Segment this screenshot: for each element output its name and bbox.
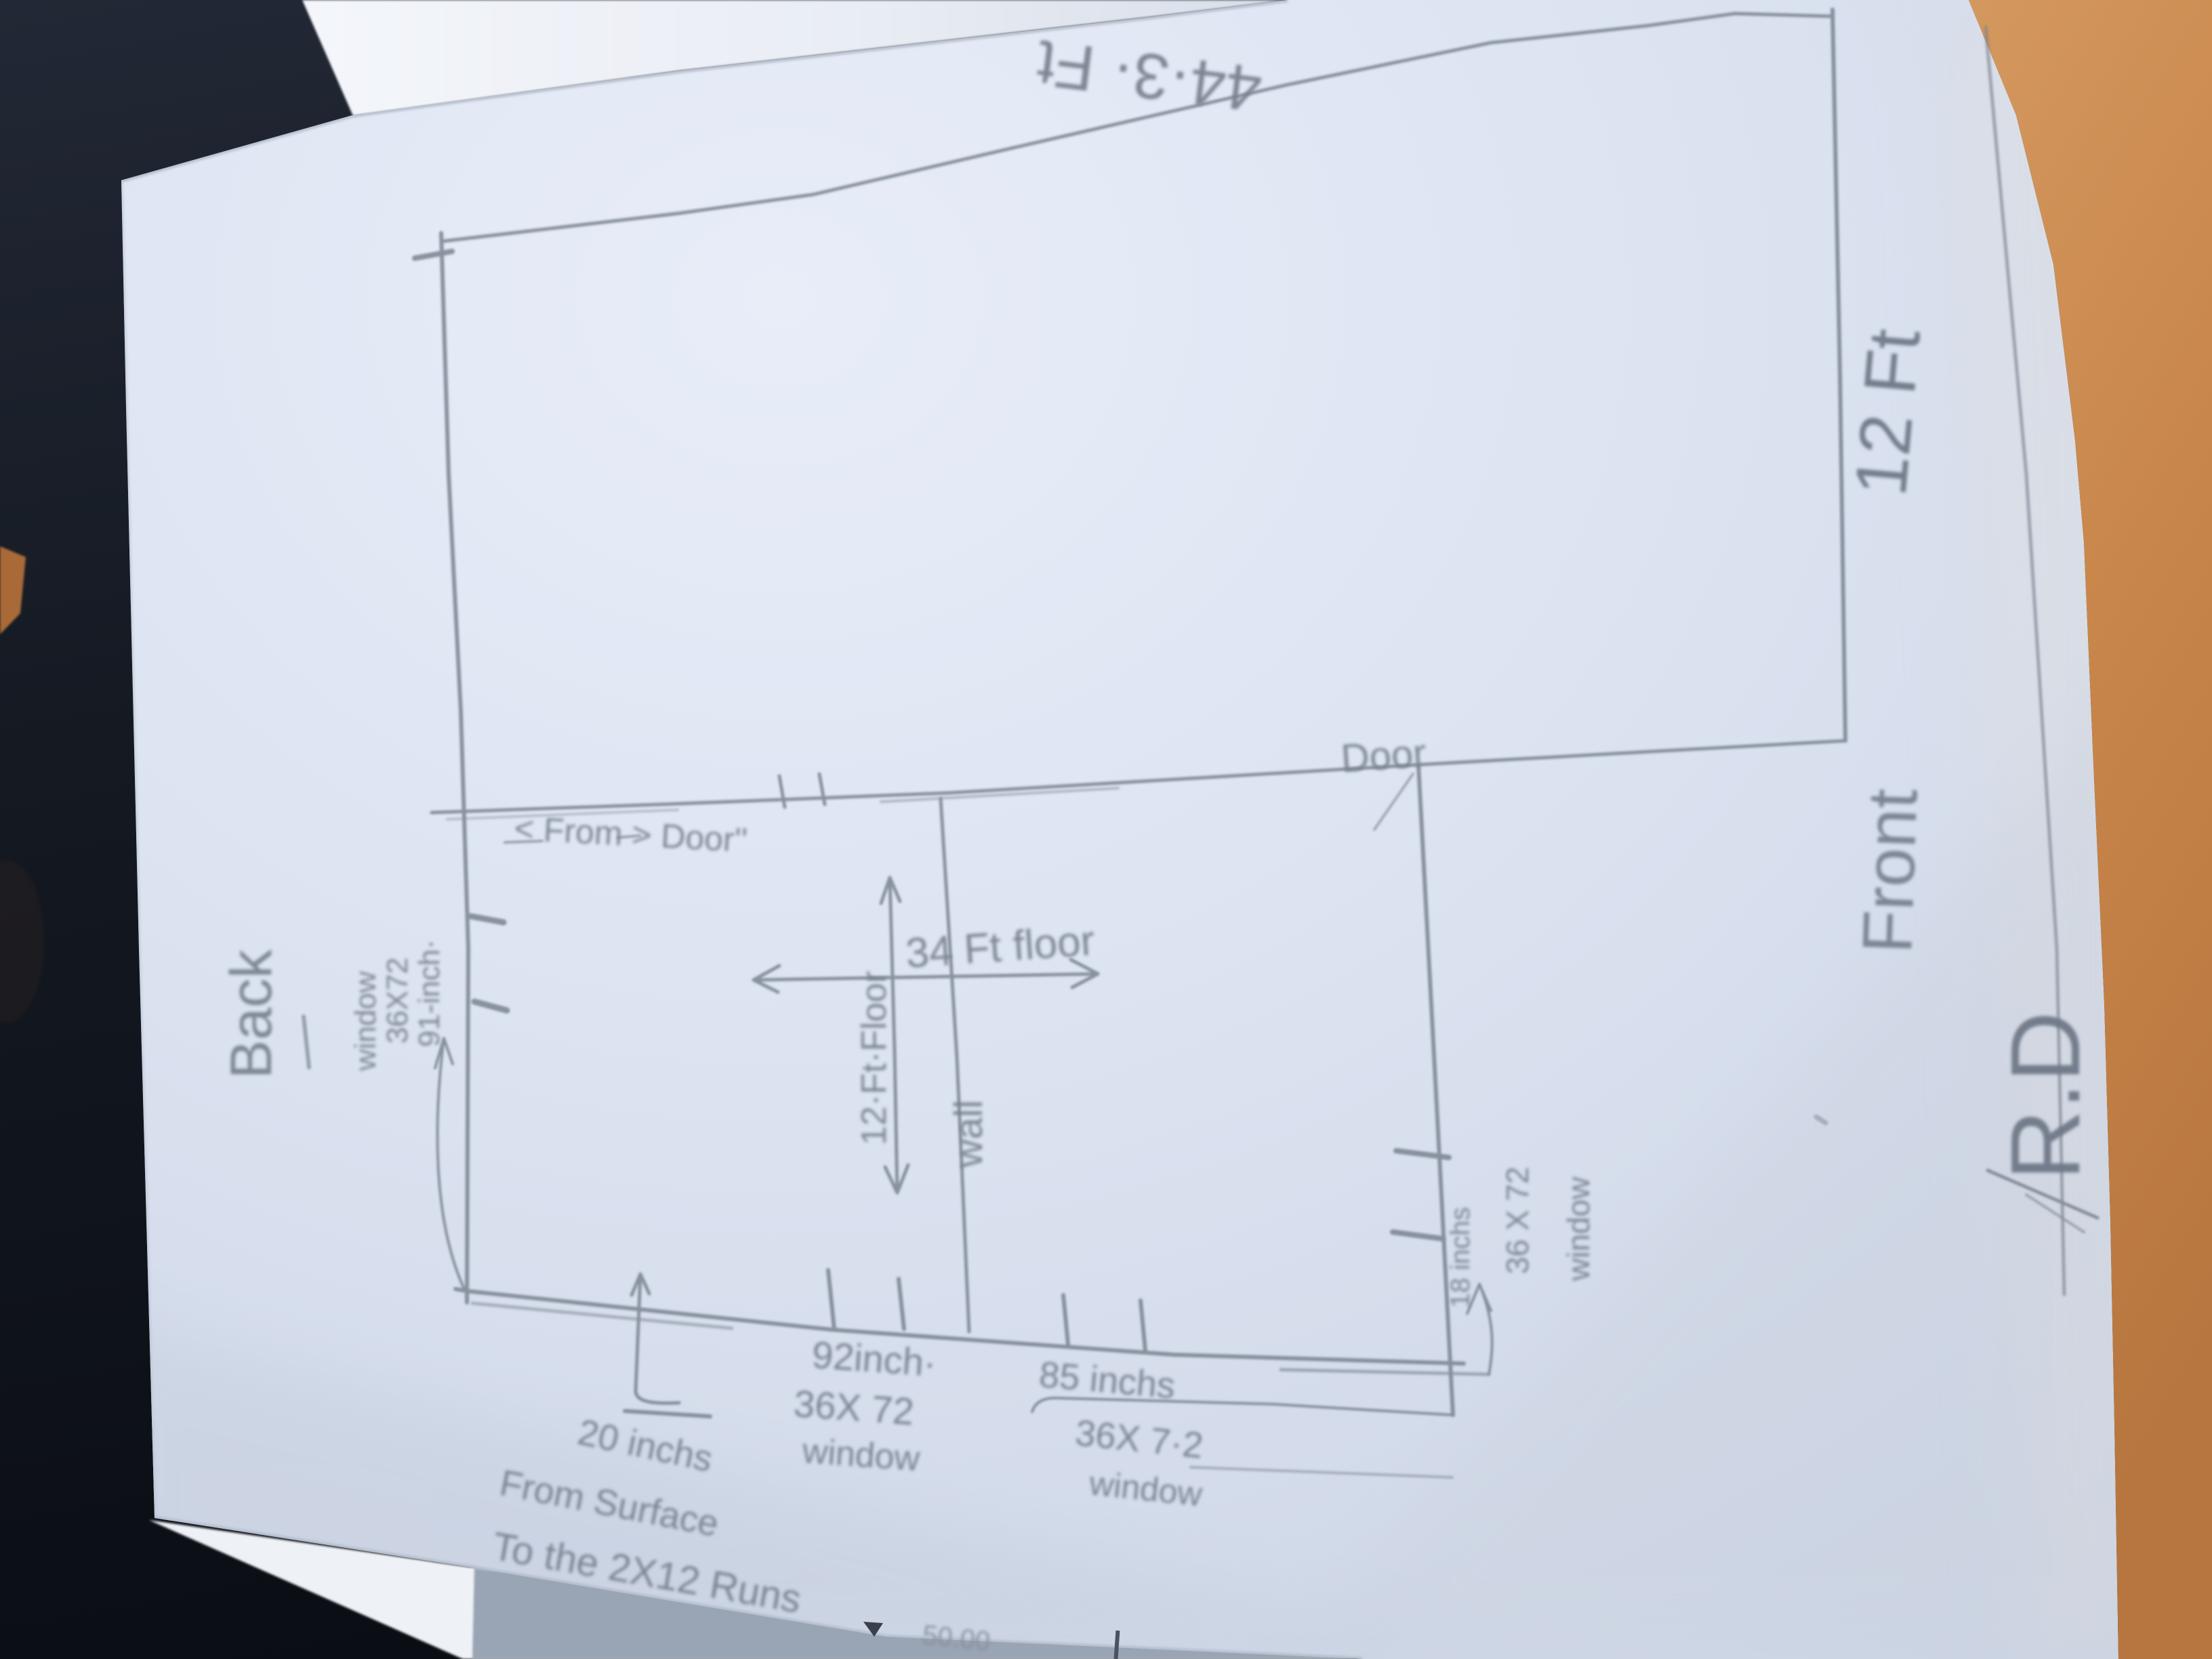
svg-text:window: window	[800, 1431, 921, 1479]
svg-text:Back: Back	[219, 949, 284, 1079]
svg-text:window: window	[1561, 1176, 1596, 1282]
svg-text:Front: Front	[1848, 787, 1932, 955]
svg-text:18 inchs: 18 inchs	[1446, 1207, 1475, 1308]
svg-text:91-inch·: 91-inch·	[413, 939, 446, 1047]
svg-text:window: window	[349, 971, 382, 1071]
svg-text:36X72: 36X72	[381, 958, 414, 1044]
svg-text:R.D: R.D	[1990, 1011, 2100, 1181]
svg-text:12 Ft: 12 Ft	[1839, 326, 1935, 499]
svg-text:36 X 72: 36 X 72	[1500, 1166, 1535, 1274]
svg-text:Door: Door	[1340, 731, 1428, 781]
svg-text:12·Ft·Floor: 12·Ft·Floor	[855, 971, 894, 1145]
svg-text:wall: wall	[947, 1100, 991, 1168]
svg-text:36X 72: 36X 72	[792, 1382, 915, 1433]
svg-text:92inch·: 92inch·	[811, 1333, 938, 1385]
